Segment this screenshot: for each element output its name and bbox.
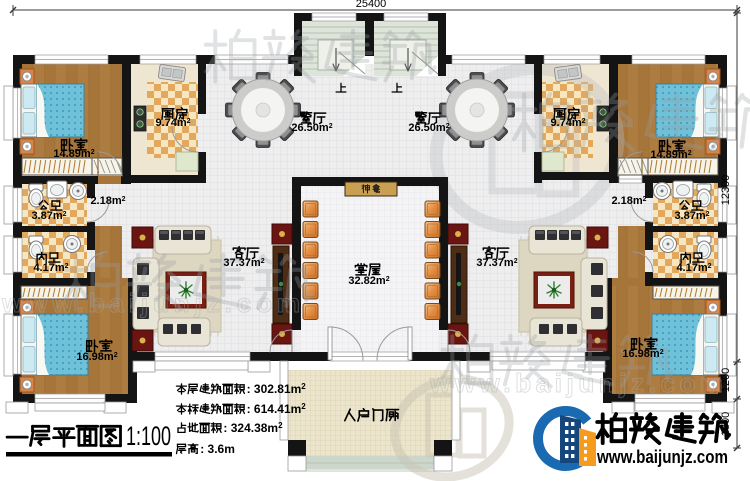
svg-text:26.50m2: 26.50m2 — [291, 122, 332, 134]
svg-text:1200: 1200 — [720, 368, 732, 392]
svg-text:16.98m2: 16.98m2 — [76, 351, 117, 363]
svg-text:14.89m2: 14.89m2 — [53, 148, 94, 160]
svg-text:9.74m2: 9.74m2 — [155, 117, 190, 129]
svg-text:25400: 25400 — [356, 0, 387, 10]
svg-text:37.37m2: 37.37m2 — [223, 257, 264, 269]
svg-text:4.17m2: 4.17m2 — [33, 262, 68, 274]
svg-text:9.74m2: 9.74m2 — [550, 117, 585, 129]
svg-text:2.18m2: 2.18m2 — [90, 195, 125, 207]
svg-text:: 324.38m2: : 324.38m2 — [223, 421, 283, 435]
svg-text:14.89m2: 14.89m2 — [650, 149, 691, 161]
svg-text:26.50m2: 26.50m2 — [408, 122, 449, 134]
svg-text:3.87m2: 3.87m2 — [674, 210, 709, 222]
svg-text:3.87m2: 3.87m2 — [31, 210, 66, 222]
svg-text:4.17m2: 4.17m2 — [676, 262, 711, 274]
svg-text:1:100: 1:100 — [126, 421, 171, 451]
svg-text:: 302.81m2: : 302.81m2 — [247, 382, 307, 396]
svg-text:37.37m2: 37.37m2 — [476, 257, 517, 269]
svg-text:: 614.41m2: : 614.41m2 — [247, 402, 307, 416]
svg-text:12300: 12300 — [720, 175, 732, 206]
svg-text:2.18m2: 2.18m2 — [611, 195, 646, 207]
svg-text:32.82m2: 32.82m2 — [348, 275, 389, 287]
svg-text:www.baijunjz.com: www.baijunjz.com — [596, 447, 728, 467]
svg-text:: 3.6m: : 3.6m — [200, 442, 235, 456]
svg-text:16.98m2: 16.98m2 — [622, 348, 663, 360]
